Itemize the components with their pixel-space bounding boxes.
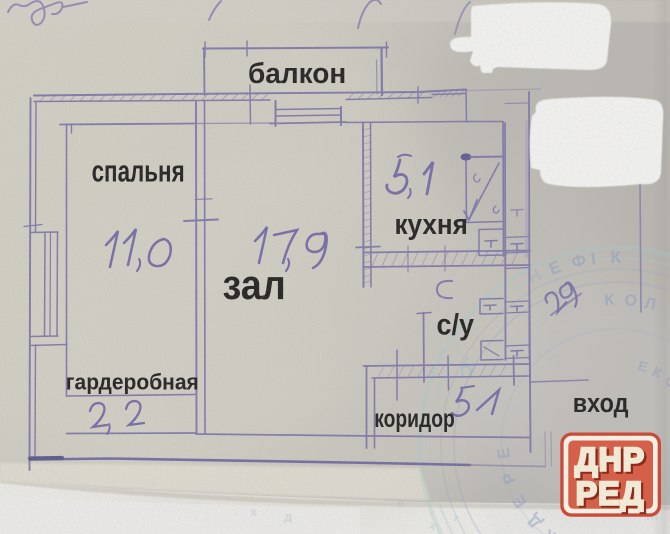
svg-text:ДНР: ДНР [575,442,645,478]
svg-text:РЕД: РЕД [576,476,644,512]
